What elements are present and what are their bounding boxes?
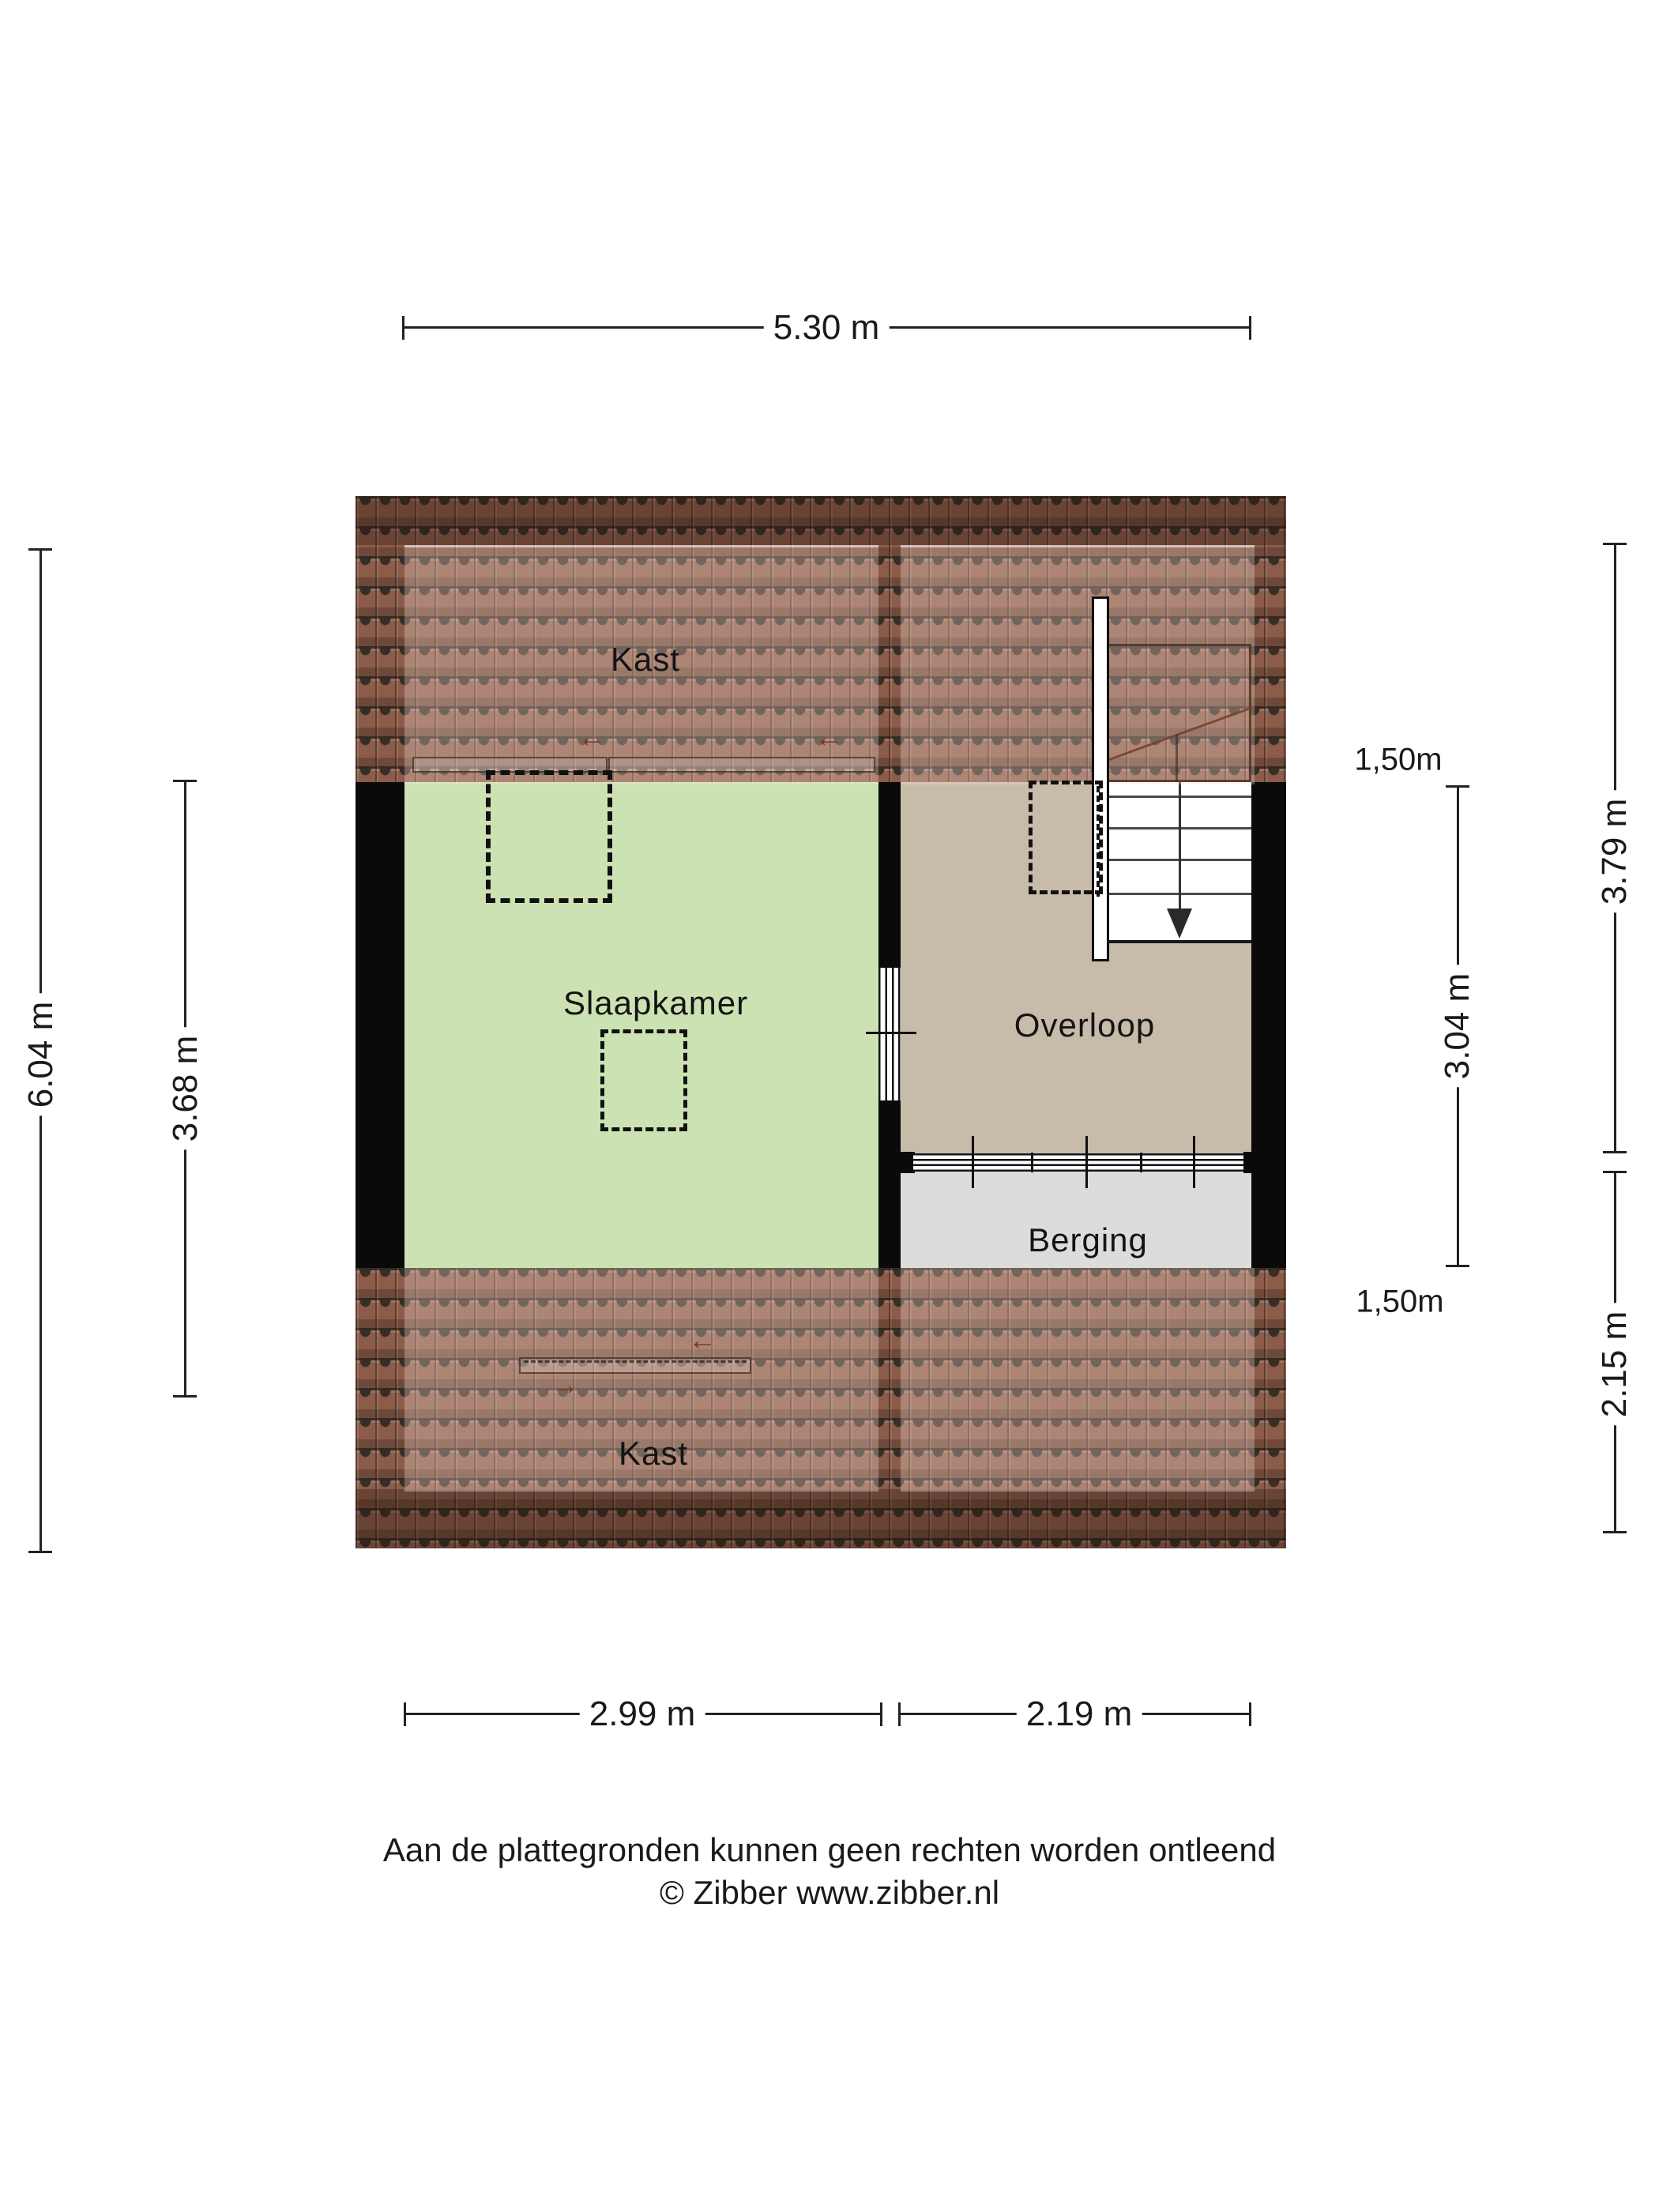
dim-tick [1249,1702,1251,1726]
room-label-text: Overloop [1014,1006,1155,1044]
footer-disclaimer: Aan de plattegronden kunnen geen rechten… [0,1831,1659,1869]
room-label-text: Kast [611,641,680,679]
stair-arrow-down-icon [1167,908,1192,939]
dim-tick [1603,543,1627,545]
dim-text: 3.04 m [1436,965,1479,1088]
dim-tick [402,316,404,340]
dim-label-left-outer: 6.04 m [0,1033,102,1076]
room-label-slaapkamer: Slaapkamer [563,984,748,1022]
height-marker-bottom: 1,50m [1356,1285,1443,1320]
partition-nib-left [899,1152,915,1173]
dashed-outline-overloop [1029,781,1103,894]
dim-tick [1603,1151,1627,1153]
wall-left [355,782,404,1268]
closet-door-front [608,757,875,773]
dashed-outline-slaapkamer-mid [600,1029,687,1131]
dim-text: 2.19 m [1017,1693,1142,1736]
roof-band-top: ← ← [355,496,1286,782]
dim-text: 3.79 m [1593,791,1636,913]
dim-label-bottom-right: 2.19 m [1017,1693,1142,1736]
closet-floor-overlay [901,1268,1255,1492]
partition-tick [1193,1136,1195,1188]
room-slaapkamer [404,782,878,1268]
room-label-kast-top: Kast [611,641,680,679]
dim-text: 2.99 m [580,1693,705,1736]
dim-label-right-lower: 2.15 m [1554,1343,1659,1386]
partition-tick [1085,1136,1088,1188]
interior-window [878,968,901,1100]
dim-tick [1446,785,1469,788]
stair-walkline [1179,782,1181,908]
dim-label-left-inner: 3.68 m [125,1067,247,1110]
roof-eave-bottom [355,1489,1286,1548]
slide-arrow-left-icon: ← [814,723,843,751]
dim-tick [1249,316,1251,340]
dim-text: 3.68 m [164,1028,207,1150]
room-label-text: Slaapkamer [563,984,748,1022]
dim-text: 2.15 m [1593,1303,1636,1426]
roof-band-bottom: ← → [355,1268,1286,1548]
room-label-overloop: Overloop [1014,1006,1155,1044]
dim-label-top-width: 5.30 m [764,307,890,349]
dim-tick [28,548,52,551]
dim-tick [28,1551,52,1553]
dim-text: 5.30 m [764,307,890,349]
wall-right [1251,782,1286,1268]
dim-tick [1446,1265,1469,1267]
interior-window-tick [866,1032,916,1034]
room-label-kast-bottom: Kast [619,1435,688,1473]
stair-stringer [1092,596,1109,961]
dim-text: 6.04 m [20,994,62,1116]
closet-door-dashline [524,1360,747,1363]
dim-label-right-upper: 3.79 m [1554,830,1659,873]
partition-nib-right [1243,1152,1255,1173]
dim-tick [1603,1171,1627,1173]
dim-tick [880,1702,882,1726]
roof-eave-top [355,496,1286,545]
dim-tick [173,1395,197,1398]
dim-tick [898,1702,901,1726]
marker-text: 1,50m [1356,1285,1443,1320]
slide-arrow-left-icon: ← [688,1326,717,1354]
dashed-outline-slaapkamer-top [486,770,612,903]
floorplan-canvas: ← ← ← → Kast Slaapkamer Overloop Berging… [0,0,1659,2212]
stair-walkline-extension [1176,735,1178,782]
dim-tick [1603,1531,1627,1533]
partition-tick [1140,1153,1142,1172]
slide-arrow-left-icon: ← [577,723,606,751]
dim-label-bottom-left: 2.99 m [580,1693,705,1736]
room-label-berging: Berging [1028,1221,1148,1259]
dim-tick [404,1702,406,1726]
partition-tick [972,1136,974,1188]
height-marker-top: 1,50m [1354,743,1442,778]
marker-text: 1,50m [1354,743,1442,778]
room-label-text: Kast [619,1435,688,1473]
dim-tick [173,780,197,782]
dim-label-right-inner: 3.04 m [1397,1005,1519,1048]
partition-tick [1031,1153,1033,1172]
room-label-text: Berging [1028,1221,1148,1259]
slide-arrow-right-icon: → [551,1371,579,1399]
footer-copyright: © Zibber www.zibber.nl [0,1874,1659,1912]
